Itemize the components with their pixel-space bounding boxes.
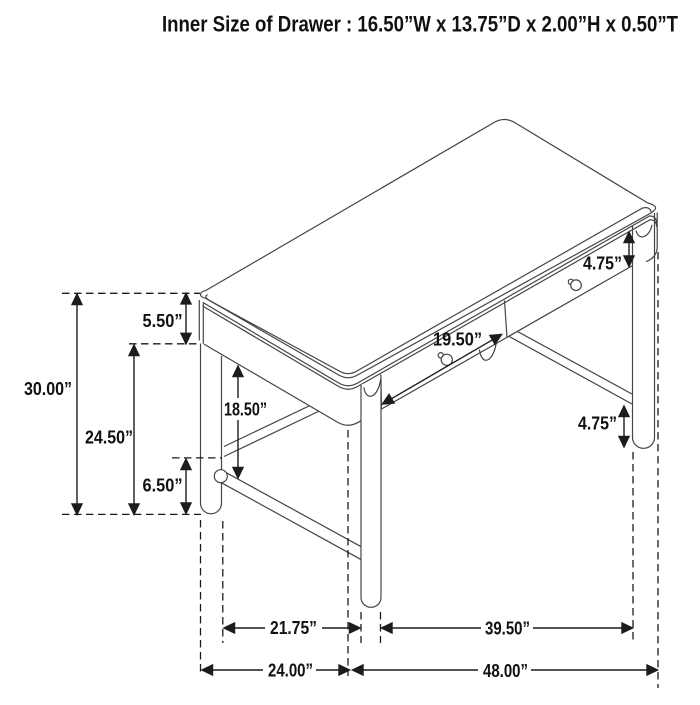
svg-text:Inner Size of Drawer : 16.50”W: Inner Size of Drawer : 16.50”W x 13.75”D… [162, 12, 678, 37]
svg-text:24.00”: 24.00” [268, 661, 313, 681]
svg-text:21.75”: 21.75” [270, 618, 317, 638]
svg-text:30.00”: 30.00” [24, 379, 72, 399]
svg-text:24.50”: 24.50” [85, 428, 133, 448]
svg-text:39.50”: 39.50” [485, 619, 530, 639]
svg-text:5.50”: 5.50” [143, 311, 183, 331]
svg-text:19.50”: 19.50” [433, 330, 482, 350]
svg-text:6.50”: 6.50” [143, 476, 183, 496]
svg-text:18.50”: 18.50” [224, 400, 267, 420]
svg-text:48.00”: 48.00” [483, 661, 528, 681]
svg-text:4.75”: 4.75” [578, 414, 617, 434]
svg-text:4.75”: 4.75” [583, 254, 622, 274]
